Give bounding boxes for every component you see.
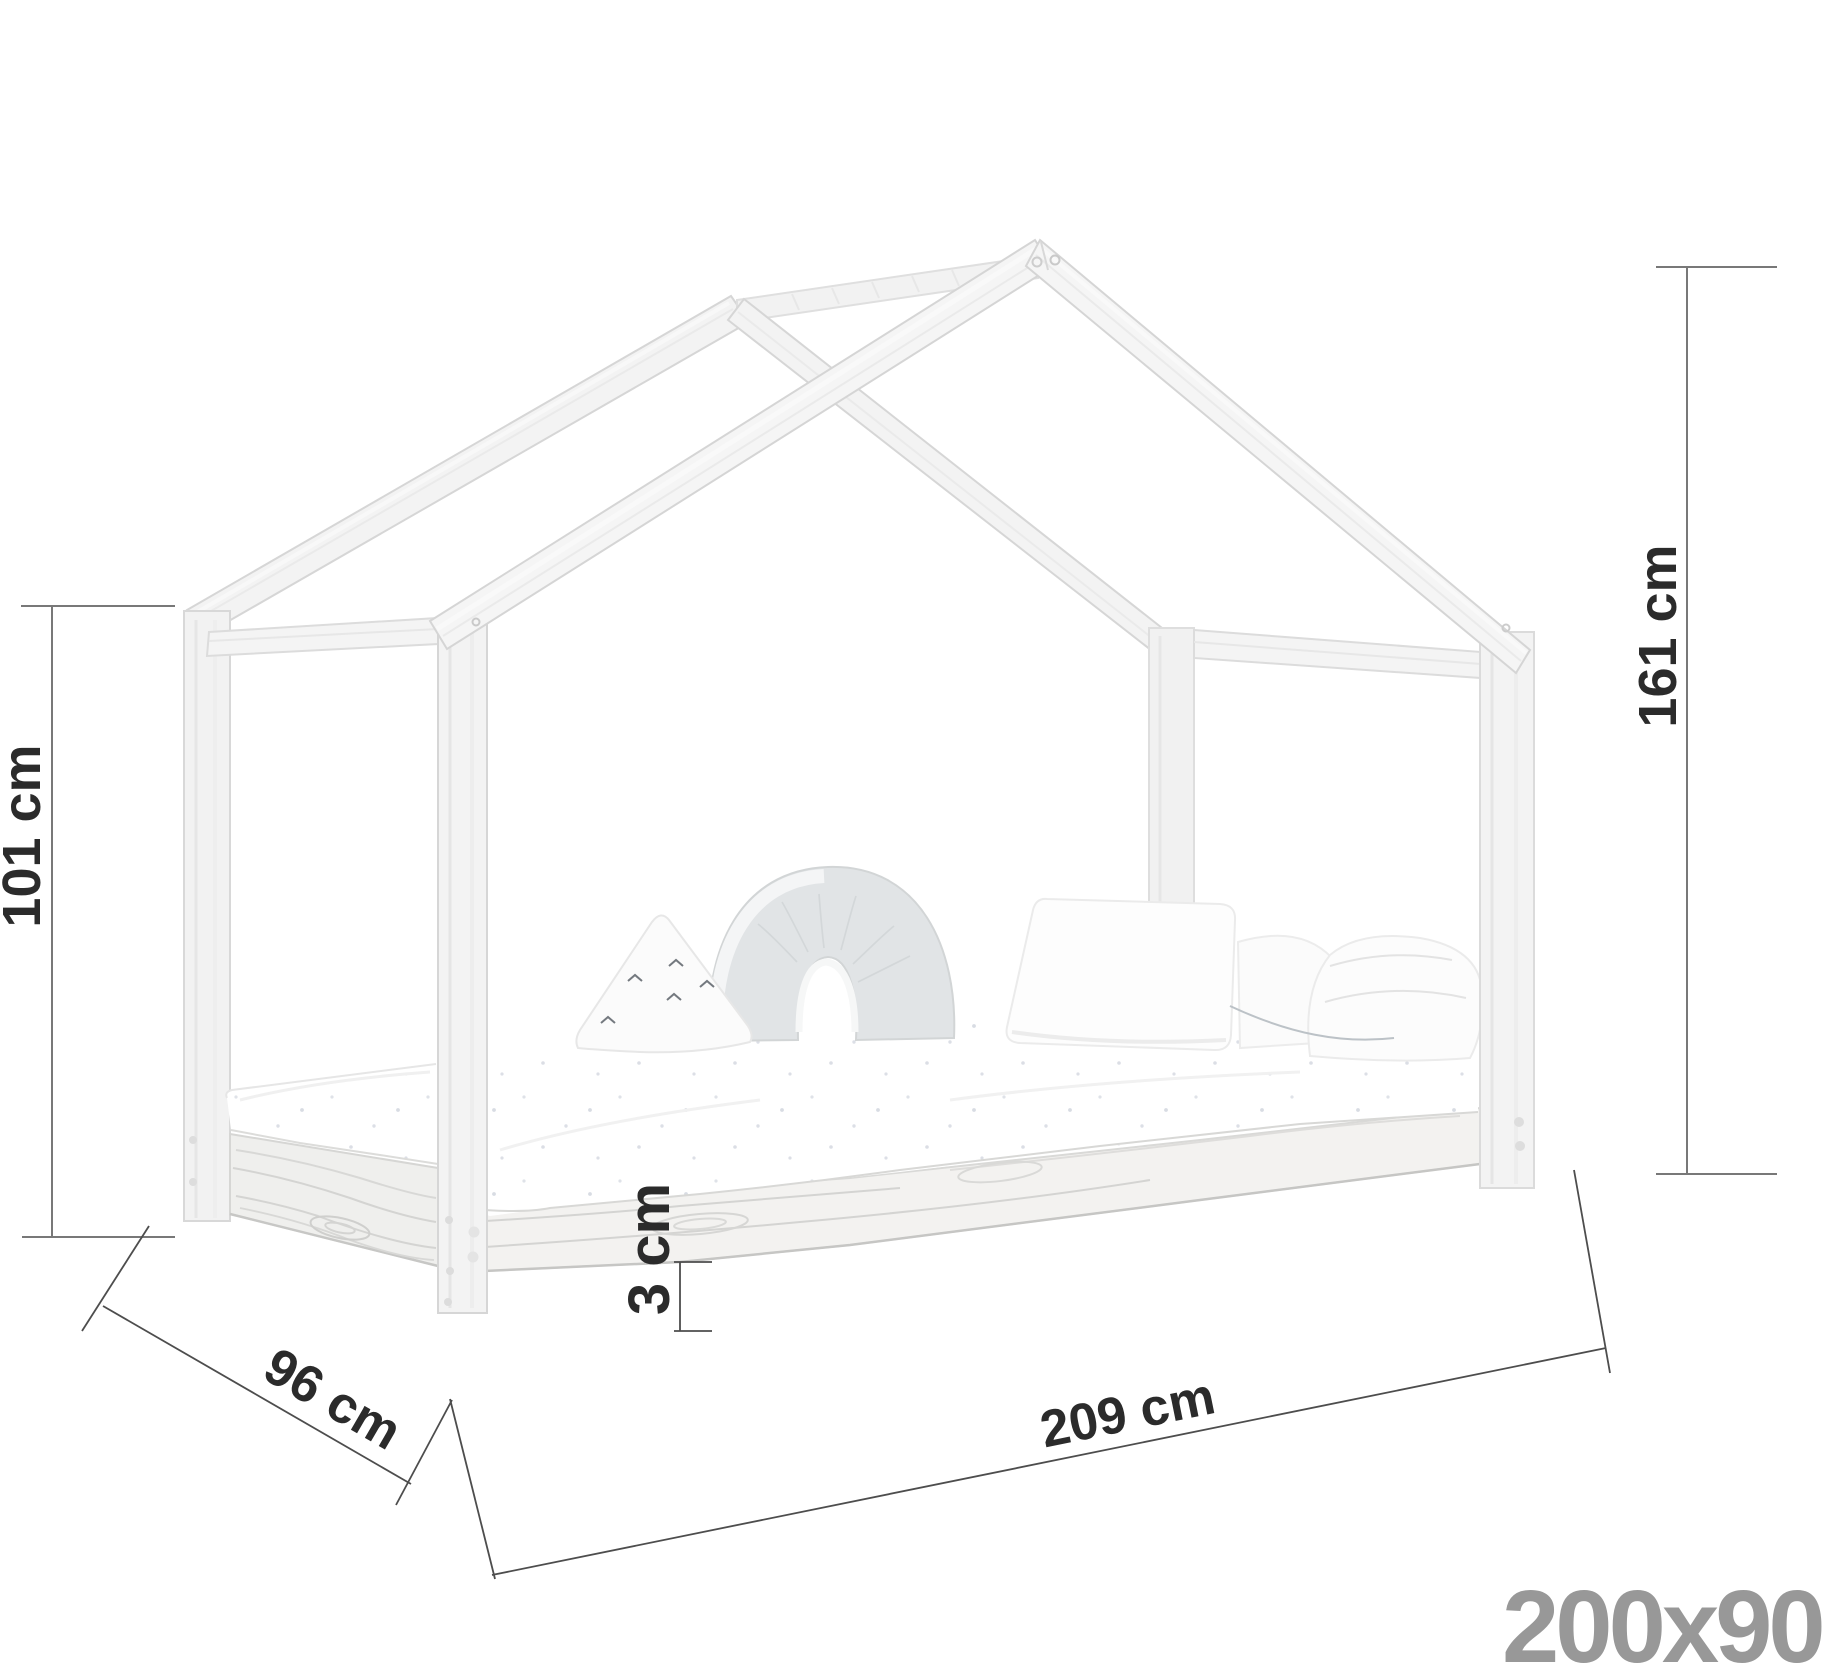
svg-text:200x90: 200x90 — [1502, 1569, 1822, 1664]
svg-text:3 cm: 3 cm — [617, 1183, 682, 1315]
svg-text:101 cm: 101 cm — [0, 744, 52, 927]
svg-text:161 cm: 161 cm — [1628, 544, 1688, 727]
